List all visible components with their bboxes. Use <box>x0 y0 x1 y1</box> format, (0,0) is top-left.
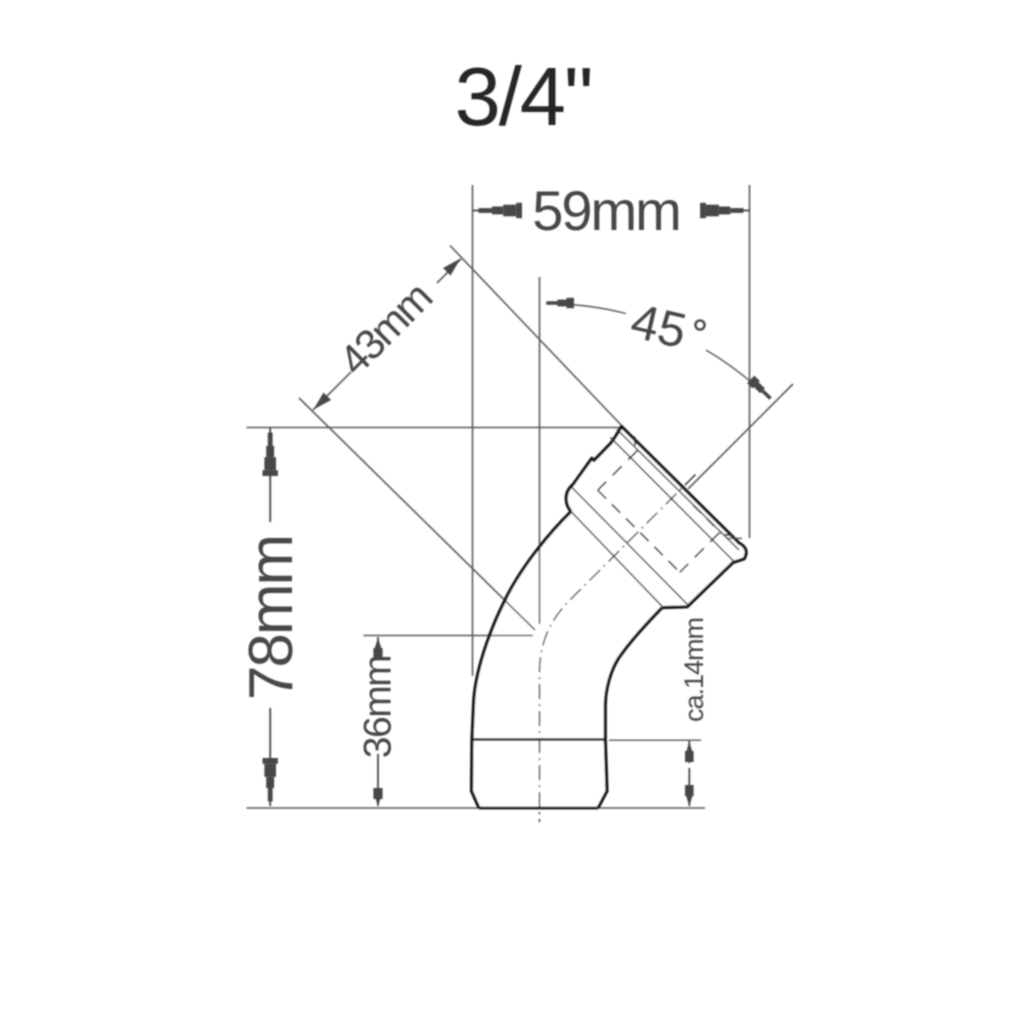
svg-text:36mm: 36mm <box>357 656 400 758</box>
svg-text:3/4": 3/4" <box>455 50 592 143</box>
svg-text:45: 45 <box>626 294 691 359</box>
svg-text:78mm: 78mm <box>237 536 306 700</box>
svg-text:43mm: 43mm <box>330 274 440 384</box>
svg-text:59mm: 59mm <box>532 179 680 242</box>
svg-text:ca.14mm: ca.14mm <box>679 618 709 722</box>
